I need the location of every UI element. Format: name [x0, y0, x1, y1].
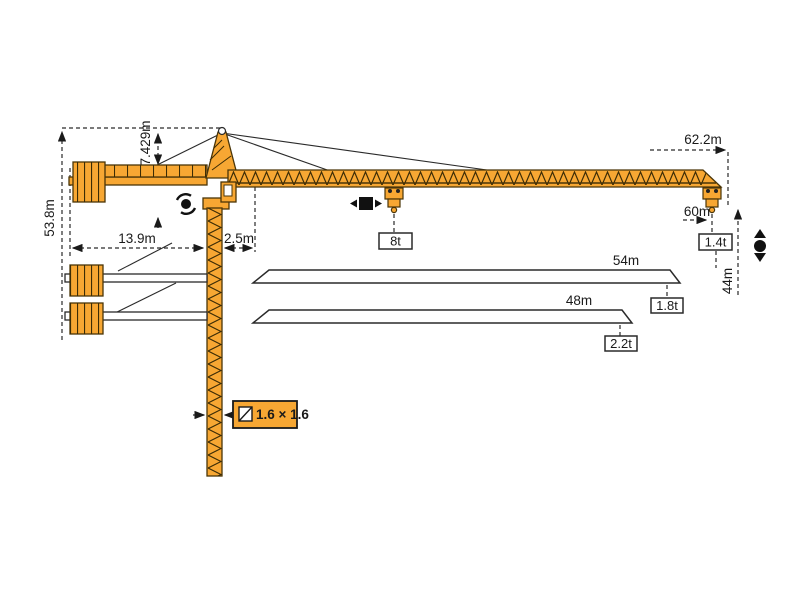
jib54-label: 54m: [613, 253, 639, 268]
counterweight-top-slabs: [73, 162, 105, 202]
hook-mid: [391, 207, 396, 212]
jib48-label: 48m: [566, 293, 592, 308]
cab-window: [224, 185, 232, 196]
counterweight1-leader-line: [118, 243, 172, 271]
hook-height-label: 44m: [720, 268, 735, 294]
mast-section-label: 1.6 × 1.6: [256, 407, 309, 422]
slewing-icon: [177, 194, 195, 214]
rear-offset-label: 2.5m: [224, 231, 254, 246]
counterjib-radius-label: 13.9m: [118, 231, 156, 246]
hoist-icon: [754, 229, 766, 262]
tip-load-48-label: 2.2t: [610, 336, 632, 351]
total-height-label: 53.8m: [42, 199, 57, 237]
apex-pin: [219, 128, 226, 135]
max-radius-label: 62.2m: [684, 132, 722, 147]
hook-tip: [709, 207, 714, 212]
apex-height-label: 7.429m: [138, 120, 153, 165]
crane-diagram: 53.8m 7.429m 13.9m 2.5m 62.2m 60m 44m 8t…: [0, 0, 800, 600]
trolley-mid: [385, 188, 403, 213]
jib-outline-54m: [253, 270, 680, 283]
tip-load-54-label: 1.8t: [656, 298, 678, 313]
counterweight2-slabs: [70, 303, 103, 334]
max-load-label: 8t: [390, 234, 401, 249]
front-tie-bar-2: [222, 133, 487, 170]
counterweight1-slabs: [70, 265, 103, 296]
jib60-label: 60m: [684, 204, 710, 219]
crane-diagram-page: 53.8m 7.429m 13.9m 2.5m 62.2m 60m 44m 8t…: [0, 0, 800, 600]
mast-section-icon: [239, 407, 252, 421]
tip-load-60-label: 1.4t: [705, 235, 727, 250]
tower-lattice: [207, 208, 222, 476]
jib-outline-48m: [253, 310, 632, 323]
trolley-travel-icon: [350, 197, 382, 210]
front-tie-bar-1: [222, 133, 333, 172]
